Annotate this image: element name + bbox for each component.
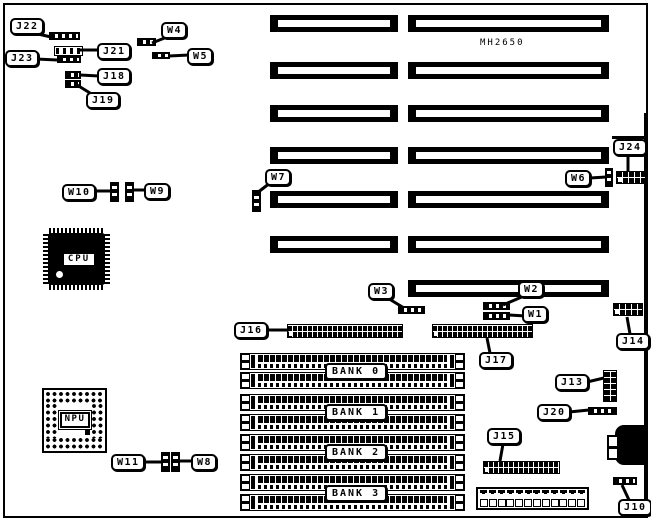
callout-w6: W6 [565,170,591,187]
bank3-label: BANK 3 [325,485,387,502]
w5-jumper [152,52,170,59]
simm-latch [251,496,255,509]
simm-bracket [455,354,464,369]
callout-w9: W9 [144,183,170,200]
j13-connector [603,370,617,402]
isa-slot [270,147,398,164]
j19-connector [65,80,81,88]
w4-jumper [137,38,156,46]
w2-jumper [483,302,510,310]
simm-latch [450,396,454,409]
callout-j18: J18 [97,68,131,85]
power-pin [533,490,540,493]
callout-j21: J21 [97,43,131,60]
board-model-label: MH2650 [480,38,525,48]
simm-bracket [455,373,464,388]
w7-jumper [252,190,261,212]
power-socket [489,499,497,507]
simm-latch [251,476,255,489]
isa-slot [408,147,609,164]
j22-connector [49,32,80,40]
simm-latch [251,396,255,409]
callout-w8: W8 [191,454,217,471]
simm-bracket [241,395,250,410]
power-socket [480,499,488,507]
power-connector [476,487,589,510]
bank1-label: BANK 1 [325,404,387,421]
isa-slot [408,280,609,297]
callout-w4: W4 [161,22,187,39]
callout-j15: J15 [487,428,521,445]
w1-jumper [483,312,510,320]
isa-slot [408,105,609,122]
w6-jumper [605,168,613,187]
isa-slot [270,15,398,32]
npu-chip: NPU [42,388,107,453]
power-socket [533,499,541,507]
bank2-label: BANK 2 [325,444,387,461]
j16-connector [287,324,403,338]
simm-bracket [241,475,250,490]
power-pin [480,490,487,493]
power-pin [525,490,532,493]
simm-latch [251,416,255,429]
simm-latch [251,355,255,368]
callout-j19: J19 [86,92,120,109]
power-pin [489,490,496,493]
j17-connector [432,324,533,338]
isa-slot [270,105,398,122]
callout-w11: W11 [111,454,145,471]
power-socket [524,499,532,507]
motherboard-diagram: MH2650 CPU [0,0,651,525]
pin1-marker [615,310,619,314]
callout-w5: W5 [187,48,213,65]
isa-slot [408,15,609,32]
simm-latch [450,374,454,387]
bank0-label: BANK 0 [325,363,387,380]
power-socket [577,499,585,507]
power-socket-row [480,499,585,507]
simm-bracket [241,354,250,369]
callout-j10: J10 [618,499,651,516]
npu-pin1-marker [85,430,90,435]
isa-slot [270,62,398,79]
power-socket [498,499,506,507]
j14-connector [613,303,643,316]
power-socket [559,499,567,507]
npu-pins-right [91,403,104,438]
power-pin [542,490,549,493]
callout-j16: J16 [234,322,268,339]
simm-latch [251,436,255,449]
simm-bracket [455,415,464,430]
pin1-marker [485,468,489,472]
npu-pins-left [45,403,58,438]
simm-latch [450,416,454,429]
simm-bracket [241,435,250,450]
isa-slot [408,62,609,79]
simm-latch [450,476,454,489]
simm-bracket [241,495,250,510]
simm-latch [251,374,255,387]
isa-slot [408,236,609,253]
j23-connector [57,56,81,63]
callout-j13: J13 [555,374,589,391]
callout-j22: J22 [10,18,44,35]
npu-label: NPU [60,412,90,428]
pin1-marker [434,332,438,336]
npu-pins-bottom [45,437,104,450]
callout-w7: W7 [265,169,291,186]
power-pin [498,490,505,493]
callout-w1: W1 [522,306,548,323]
callout-j17: J17 [479,352,513,369]
power-pin [551,490,558,493]
cpu-chip: CPU [43,228,110,290]
simm-latch [450,496,454,509]
w11-jumper [161,452,170,472]
w10-jumper [110,182,119,202]
j15-connector [483,461,560,474]
simm-bracket [455,495,464,510]
simm-latch [251,456,255,469]
simm-bracket [241,415,250,430]
callout-w2: W2 [518,281,544,298]
callout-w3: W3 [368,283,394,300]
j10-connector [613,477,637,485]
callout-j14: J14 [616,333,650,350]
npu-label-box: NPU [58,410,92,430]
simm-latch [450,456,454,469]
power-pin [507,490,514,493]
j24-connector [616,171,646,184]
simm-latch [450,436,454,449]
simm-bracket [455,395,464,410]
power-socket [551,499,559,507]
isa-slot [270,191,398,208]
power-pin [516,490,523,493]
isa-slot [270,236,398,253]
simm-bracket [241,455,250,470]
pin1-marker [289,332,293,336]
pin1-marker [618,178,622,182]
callout-w10: W10 [62,184,96,201]
power-socket [506,499,514,507]
isa-slot [408,191,609,208]
simm-bracket [241,373,250,388]
callout-j20: J20 [537,404,571,421]
j21-connector [54,46,83,56]
keyboard-din-connector [615,425,648,465]
simm-bracket [455,435,464,450]
power-pin [578,490,585,493]
power-socket [515,499,523,507]
j20-connector [588,407,617,415]
cpu-label: CPU [62,252,96,267]
j18-connector [65,71,81,79]
callout-j24: J24 [613,139,647,156]
callout-j23: J23 [5,50,39,67]
power-socket [542,499,550,507]
cpu-pin1-dot [56,271,63,278]
power-pin-row [480,490,585,498]
w9-jumper [125,182,134,202]
simm-bracket [455,455,464,470]
w8-jumper [171,452,180,472]
power-pin [569,490,576,493]
power-socket [568,499,576,507]
simm-latch [450,355,454,368]
w3-jumper [398,306,425,314]
simm-bracket [455,475,464,490]
power-pin [560,490,567,493]
keyboard-connector-tab [607,447,619,460]
